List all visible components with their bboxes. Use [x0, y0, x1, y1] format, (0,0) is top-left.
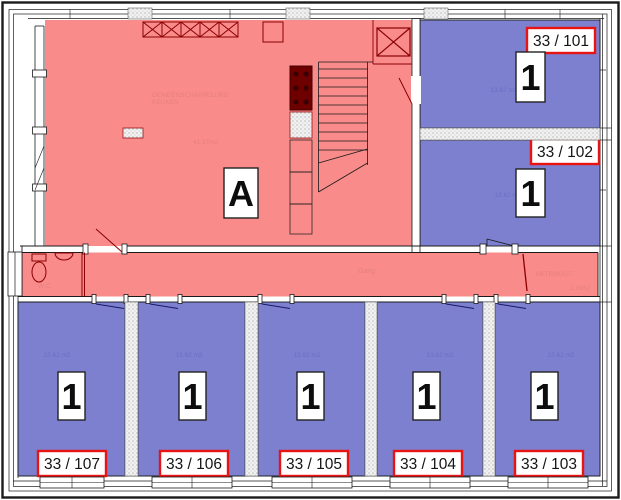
floor-plan: 13.62 m2 33 / 101 1 13.62 m2 33 / 102 1 …: [0, 0, 621, 500]
unit-33-101[interactable]: 13.62 m2 33 / 101 1: [420, 20, 600, 128]
wall-pier: [128, 8, 152, 19]
wc-label: W.C.: [38, 283, 52, 290]
unit-type-text: 1: [520, 57, 540, 98]
kitchen-area-text: 41.37m2: [193, 139, 219, 146]
unit-type-text: 1: [61, 376, 81, 417]
unit-area-text: 13.62 m2: [43, 352, 70, 359]
kitchen-name-line1: GEMEENSCHAPPELIJKE: [152, 92, 229, 99]
unit-33-104[interactable]: 13.62 m2 1 33 / 104: [377, 302, 483, 476]
unit-33-102[interactable]: 13.62 m2 33 / 102 1: [420, 139, 600, 246]
kitchen-item-icon: [123, 128, 143, 138]
unit-33-103[interactable]: 13.62 m2 1 33 / 103: [495, 302, 600, 476]
unit-number-text: 33 / 107: [44, 456, 100, 473]
unit-type-text: 1: [416, 376, 436, 417]
unit-number-text: 33 / 105: [286, 456, 342, 473]
unit-number-text: 33 / 103: [521, 456, 577, 473]
wall-hatched: [365, 302, 377, 476]
unit-type-text: 1: [520, 173, 540, 214]
wall-pier: [424, 8, 448, 19]
wall-hatched: [245, 302, 258, 476]
unit-33-107[interactable]: 13.62 m2 1 33 / 107: [18, 302, 125, 476]
unit-area-text: 13.62 m2: [426, 352, 453, 359]
wall-hatched: [483, 302, 495, 476]
unit-area-text: 13.62 m2: [547, 352, 574, 359]
unit-type-text: 1: [534, 376, 554, 417]
unit-33-105[interactable]: 13.62 m2 1 33 / 105: [258, 302, 365, 476]
window-mullion: [33, 70, 47, 77]
unit-area-text: 13.62 m2: [490, 87, 517, 94]
kitchen-name-line2: KEUKEN: [152, 99, 179, 106]
floor-plan-drawing: 13.62 m2 33 / 101 1 13.62 m2 33 / 102 1 …: [0, 0, 621, 500]
unit-type-text: 1: [182, 376, 202, 417]
wall: [412, 19, 420, 253]
corridor-label: Gang: [358, 268, 375, 275]
unit-number-text: 33 / 104: [400, 456, 456, 473]
corridor-area[interactable]: [22, 253, 598, 297]
stove-icon: [290, 66, 312, 110]
unit-area-text: 13.62 m2: [175, 352, 202, 359]
unit-33-106[interactable]: 13.62 m2 1 33 / 106: [138, 302, 245, 476]
window-mullion: [33, 184, 47, 191]
meterkast-area-text: 2.19m2: [570, 286, 591, 292]
wall-pier: [286, 8, 310, 19]
door-opening: [411, 76, 421, 104]
common-area-type-text: A: [228, 173, 254, 214]
worktop-icon: [290, 112, 312, 138]
window-mullion: [33, 127, 47, 134]
unit-area-text: 13.62 m2: [293, 352, 320, 359]
unit-number-text: 33 / 101: [533, 33, 589, 50]
unit-type-text: 1: [300, 376, 320, 417]
unit-number-text: 33 / 102: [537, 144, 593, 161]
meterkast-label: METERKAST: [536, 272, 573, 278]
wall-hatched: [125, 302, 138, 476]
unit-number-text: 33 / 106: [166, 456, 222, 473]
wall-hatched: [420, 128, 600, 140]
